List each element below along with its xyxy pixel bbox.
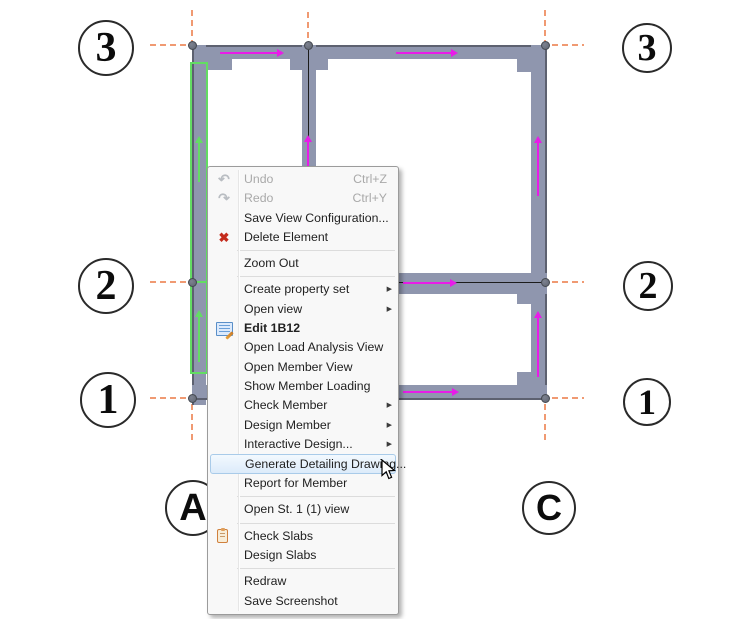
submenu-arrow-icon: ▶	[387, 280, 392, 299]
gridline-dash	[191, 10, 193, 42]
menu-item-redo: ↷ Redo Ctrl+Y	[208, 189, 398, 208]
menu-item-report-for-member[interactable]: Report for Member	[208, 474, 398, 493]
span-direction-arrow	[403, 388, 459, 396]
submenu-arrow-icon: ▶	[387, 396, 392, 415]
span-direction-arrow	[534, 311, 542, 377]
grid-node[interactable]	[188, 278, 197, 287]
gridline-dash	[191, 404, 193, 442]
menu-item-design-member[interactable]: Design Member ▶	[208, 416, 398, 435]
submenu-arrow-icon: ▶	[387, 435, 392, 454]
grid-node[interactable]	[541, 278, 550, 287]
menu-separator	[237, 496, 395, 497]
grid-bubble-row2-right: 2	[623, 261, 673, 311]
menu-item-edit-1b12[interactable]: Edit 1B12	[208, 319, 398, 338]
submenu-arrow-icon: ▶	[387, 300, 392, 319]
grid-node[interactable]	[541, 41, 550, 50]
grid-bubble-col-c: C	[522, 481, 576, 535]
gridline-dash	[552, 44, 584, 46]
span-direction-arrow	[534, 136, 542, 196]
submenu-arrow-icon: ▶	[387, 416, 392, 435]
redo-icon: ↷	[215, 189, 233, 208]
clipboard-icon	[217, 529, 228, 543]
menu-item-open-member-view[interactable]: Open Member View	[208, 358, 398, 377]
menu-separator	[237, 276, 395, 277]
grid-bubble-row3-right: 3	[622, 23, 672, 73]
wall-notch	[517, 372, 531, 385]
span-direction-arrow	[403, 279, 457, 287]
menu-item-redraw[interactable]: Redraw	[208, 572, 398, 591]
wall-notch	[517, 294, 531, 304]
menu-item-check-member[interactable]: Check Member ▶	[208, 396, 398, 415]
undo-icon: ↶	[215, 170, 233, 189]
menu-item-interactive-design[interactable]: Interactive Design... ▶	[208, 435, 398, 454]
selected-wall-arrow	[195, 136, 203, 182]
delete-icon: ✖	[215, 228, 233, 247]
span-direction-arrow	[396, 49, 458, 57]
context-menu: ↶ Undo Ctrl+Z ↷ Redo Ctrl+Y Save View Co…	[207, 166, 399, 615]
menu-item-generate-detailing-drawing[interactable]: Generate Detailing Drawing...	[210, 454, 396, 474]
menu-item-show-member-loading[interactable]: Show Member Loading	[208, 377, 398, 396]
menu-separator	[237, 250, 395, 251]
menu-separator	[237, 523, 395, 524]
gridline-dash	[150, 44, 188, 46]
wall-notch	[206, 59, 232, 70]
menu-item-save-view-configuration[interactable]: Save View Configuration...	[208, 209, 398, 228]
menu-item-check-slabs[interactable]: Check Slabs	[208, 527, 398, 546]
gridline-dash	[552, 397, 584, 399]
mouse-cursor-icon	[381, 459, 396, 486]
grid-node[interactable]	[188, 41, 197, 50]
menu-item-design-slabs[interactable]: Design Slabs	[208, 546, 398, 565]
wall-notch	[316, 59, 328, 70]
menu-item-zoom-out[interactable]: Zoom Out	[208, 254, 398, 273]
gridline-dash	[544, 10, 546, 42]
viewport: { "colors": { "wall": "#8f96ae", "wall-e…	[0, 0, 730, 619]
grid-bubble-row3-left: 3	[78, 20, 134, 76]
menu-item-open-st-1-view[interactable]: Open St. 1 (1) view	[208, 500, 398, 519]
gridline-dash	[552, 281, 584, 283]
span-direction-arrow	[220, 49, 284, 57]
grid-bubble-row2-left: 2	[78, 258, 134, 314]
edit-icon	[216, 322, 233, 336]
menu-item-open-view[interactable]: Open view ▶	[208, 300, 398, 319]
gridline-dash	[150, 281, 188, 283]
grid-node[interactable]	[304, 41, 313, 50]
menu-item-open-load-analysis-view[interactable]: Open Load Analysis View	[208, 338, 398, 357]
gridline-dash	[544, 404, 546, 440]
gridline-dash	[150, 397, 188, 399]
menu-item-undo: ↶ Undo Ctrl+Z	[208, 170, 398, 189]
grid-bubble-row1-left: 1	[80, 372, 136, 428]
selected-wall-arrow	[195, 310, 203, 362]
menu-item-delete-element[interactable]: ✖ Delete Element	[208, 228, 398, 247]
menu-item-save-screenshot[interactable]: Save Screenshot	[208, 592, 398, 611]
wall-notch	[517, 59, 531, 72]
wall-notch	[290, 59, 302, 70]
grid-bubble-row1-right: 1	[623, 378, 671, 426]
grid-node[interactable]	[188, 394, 197, 403]
menu-item-create-property-set[interactable]: Create property set ▶	[208, 280, 398, 299]
gridline-dash	[307, 12, 309, 42]
grid-node[interactable]	[541, 394, 550, 403]
menu-separator	[237, 568, 395, 569]
